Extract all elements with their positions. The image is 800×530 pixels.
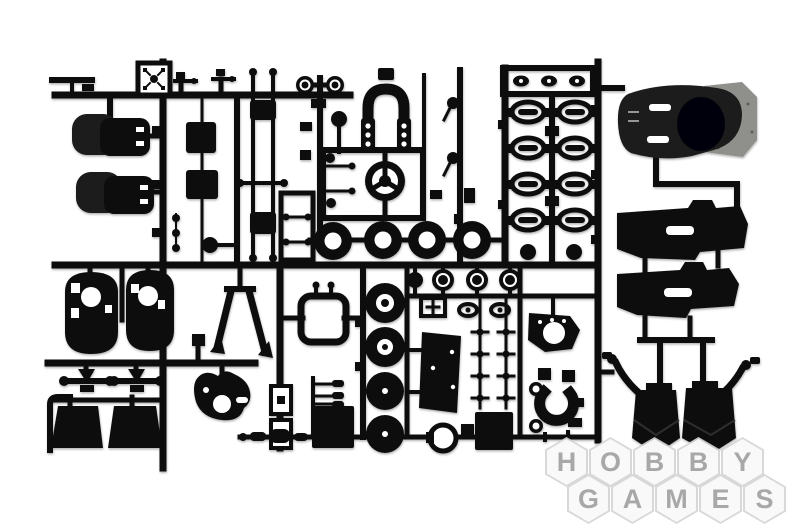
ladder-frame-part: [283, 214, 312, 246]
gearbox-bracket-part: [194, 371, 250, 420]
fender-parts: [72, 114, 154, 214]
steering-wheel-part: [325, 153, 405, 208]
valve-parts: [175, 69, 235, 95]
fork-parts: [313, 380, 344, 408]
engine-cowl-part: [618, 82, 757, 158]
gear-knob-part: [331, 111, 347, 127]
battery-box-part: [312, 406, 513, 450]
tank-frame-part: [301, 282, 346, 343]
product-photo-model-kit-sprue: H O B B Y G A M E S: [0, 0, 800, 530]
emblem-plate-part: [138, 63, 170, 95]
chassis-panel-part: [617, 200, 748, 260]
axle-parts: [59, 369, 165, 392]
sprue-photo: [0, 0, 800, 530]
steering-rim-part: [426, 425, 456, 451]
gearbox-plate-part: [528, 313, 580, 352]
mud-flap-part: [51, 406, 162, 448]
caliper-bracket-part: [529, 368, 584, 433]
suspension-link-parts: [498, 76, 599, 261]
roll-bar-part: [361, 68, 411, 152]
roll-hoop-frame-part: [192, 289, 273, 358]
chassis-panel-part: [617, 262, 739, 318]
tank-part: [632, 381, 736, 454]
exhaust-pipe-part: [602, 352, 760, 394]
wheel-hub-parts: [407, 269, 521, 291]
door-panel-part: [419, 332, 461, 413]
